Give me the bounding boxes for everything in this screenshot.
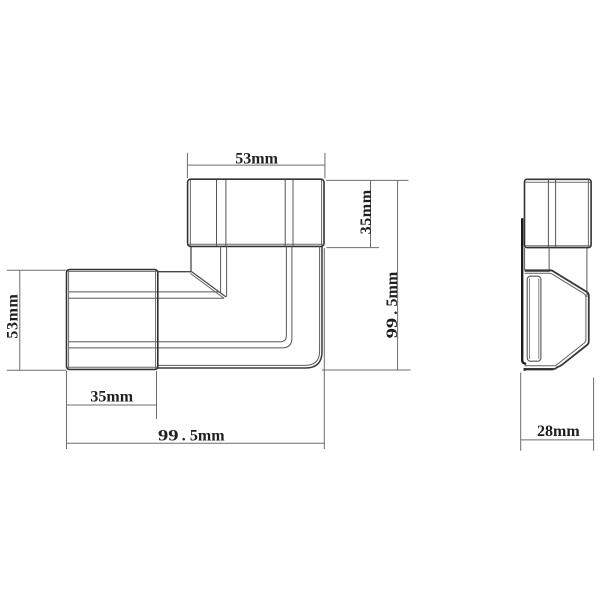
svg-text:99.5mm: 99.5mm bbox=[384, 271, 401, 338]
svg-text:35mm: 35mm bbox=[90, 389, 133, 406]
svg-text:99.5mm: 99.5mm bbox=[158, 428, 225, 445]
svg-text:28mm: 28mm bbox=[537, 423, 580, 440]
svg-text:35mm: 35mm bbox=[358, 189, 375, 234]
svg-text:53mm: 53mm bbox=[5, 293, 22, 338]
svg-text:53mm: 53mm bbox=[235, 150, 278, 167]
